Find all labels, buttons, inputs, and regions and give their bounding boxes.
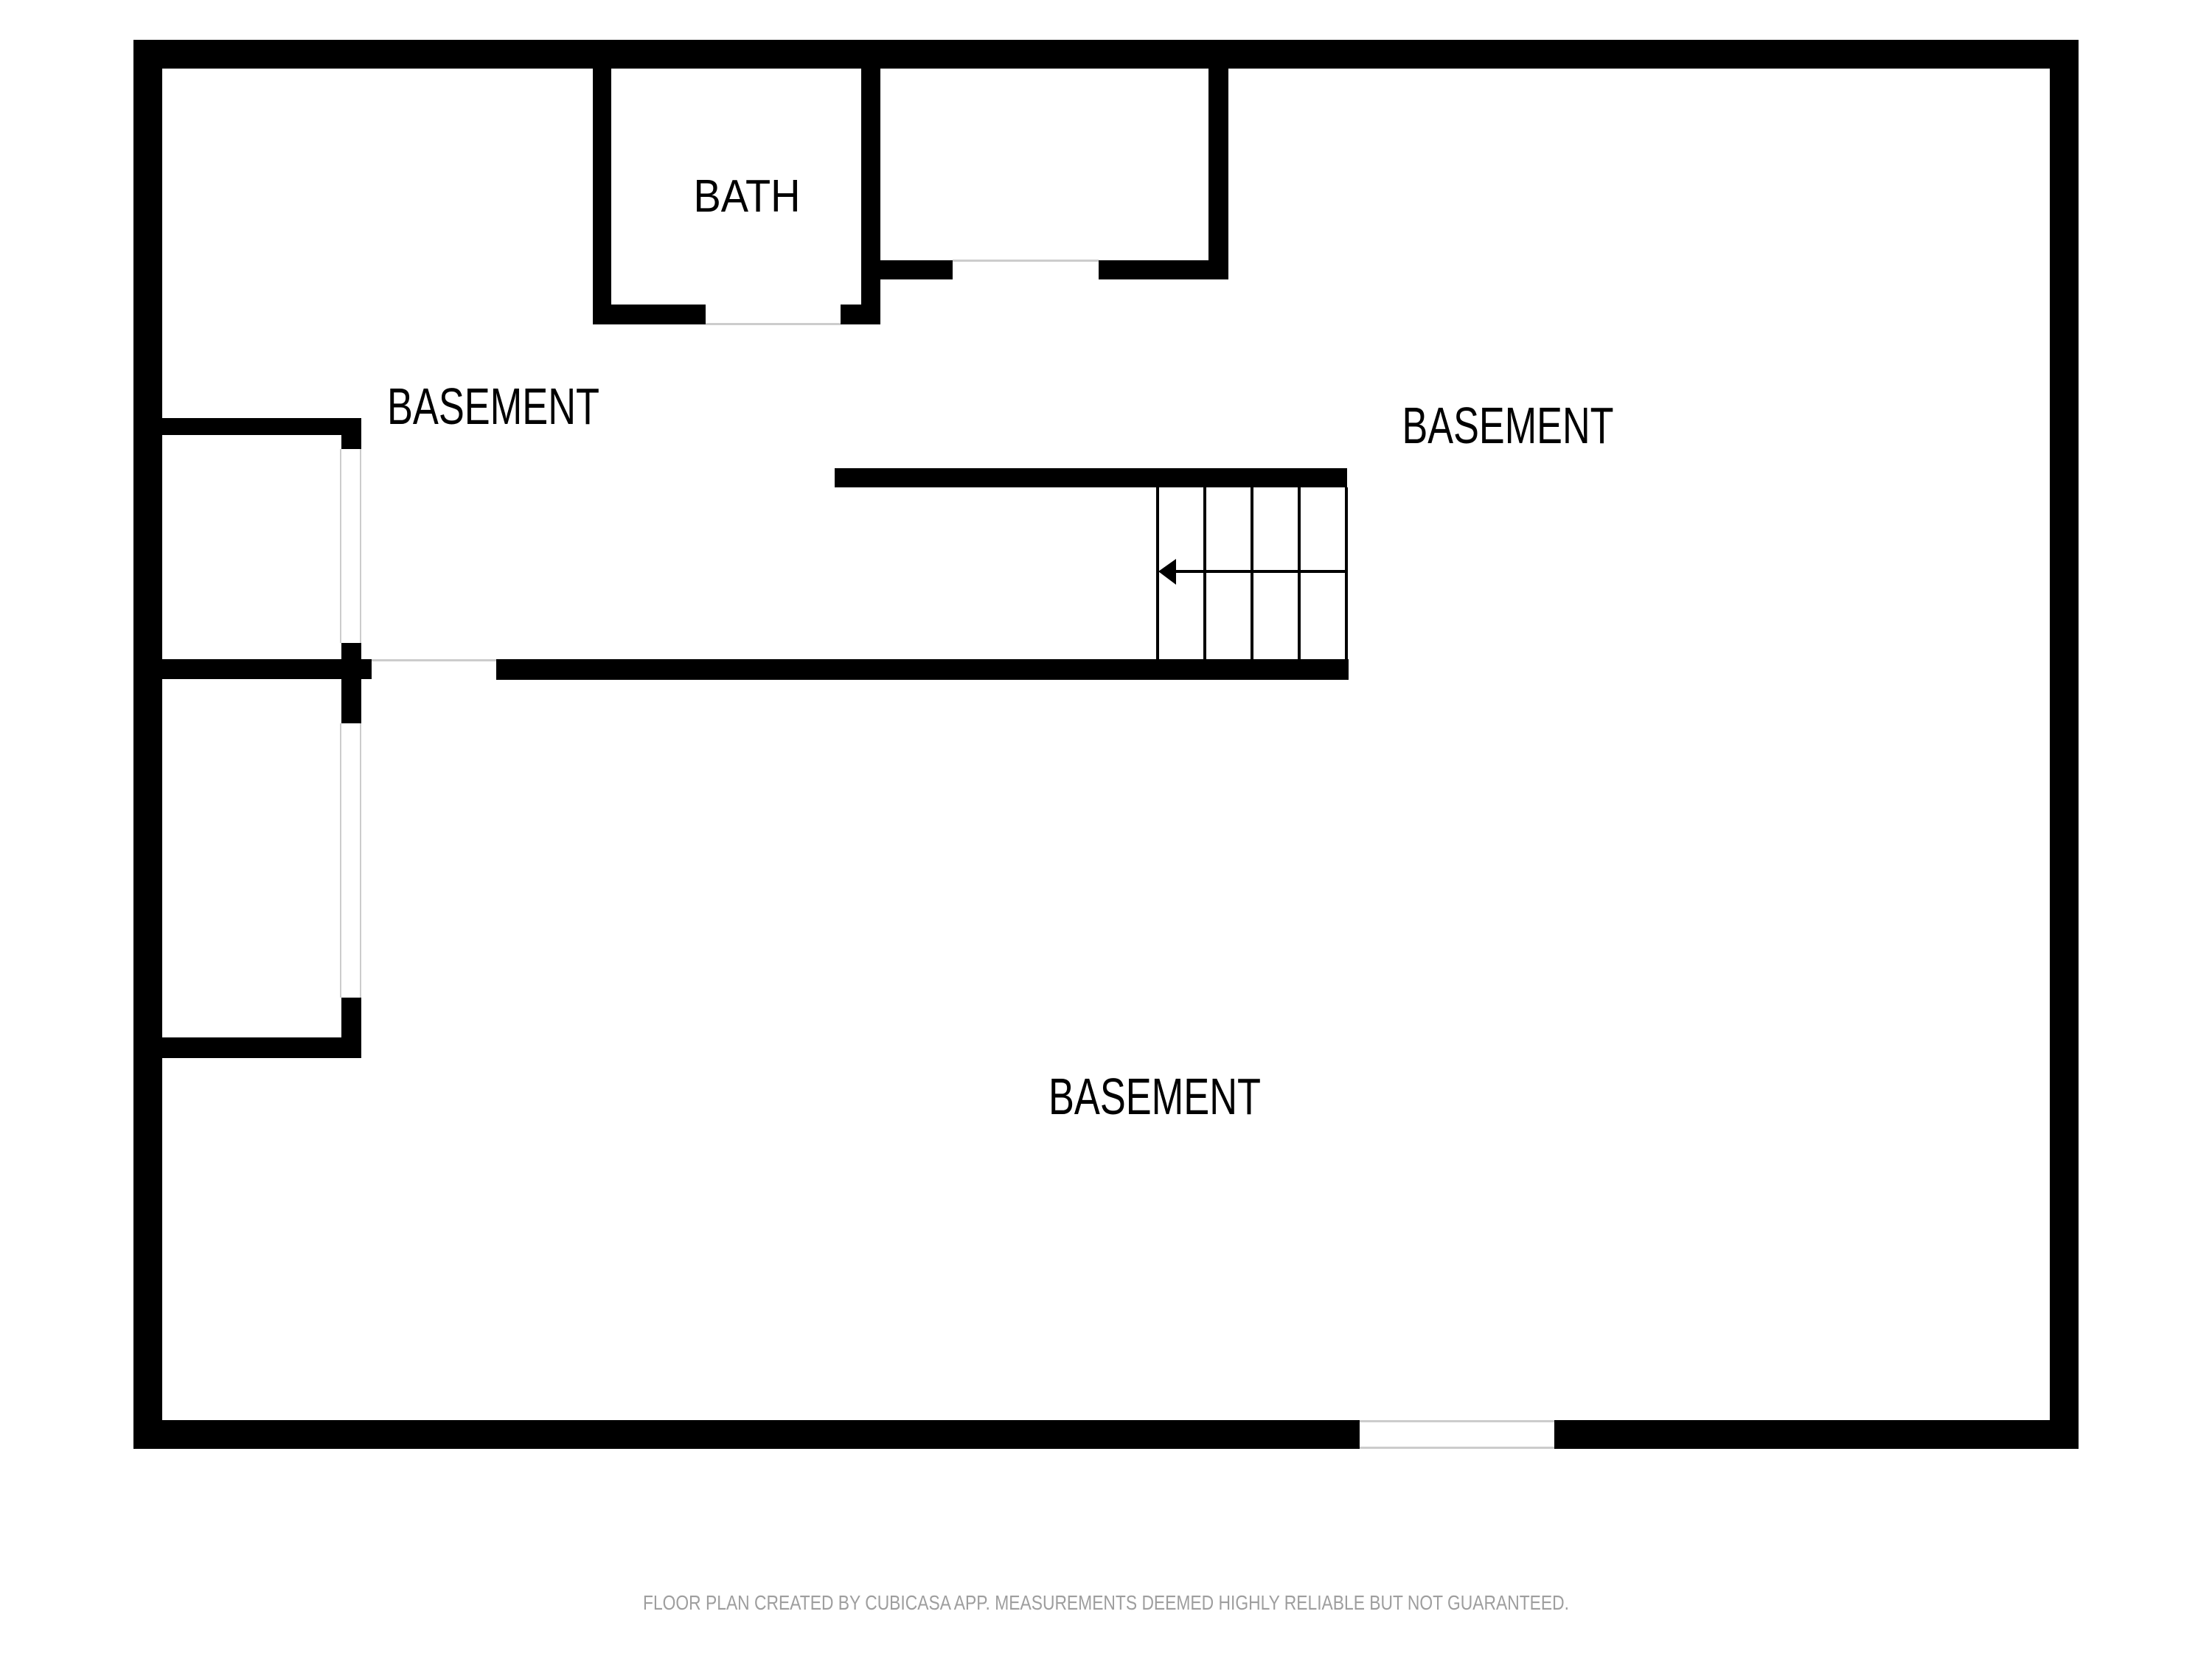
- svg-text:BASEMENT: BASEMENT: [387, 378, 599, 435]
- svg-text:BATH: BATH: [694, 171, 801, 222]
- svg-text:BASEMENT: BASEMENT: [1048, 1068, 1261, 1125]
- svg-text:BASEMENT: BASEMENT: [1402, 397, 1614, 454]
- svg-text:FLOOR PLAN CREATED BY CUBICASA: FLOOR PLAN CREATED BY CUBICASA APP. MEAS…: [643, 1591, 1569, 1614]
